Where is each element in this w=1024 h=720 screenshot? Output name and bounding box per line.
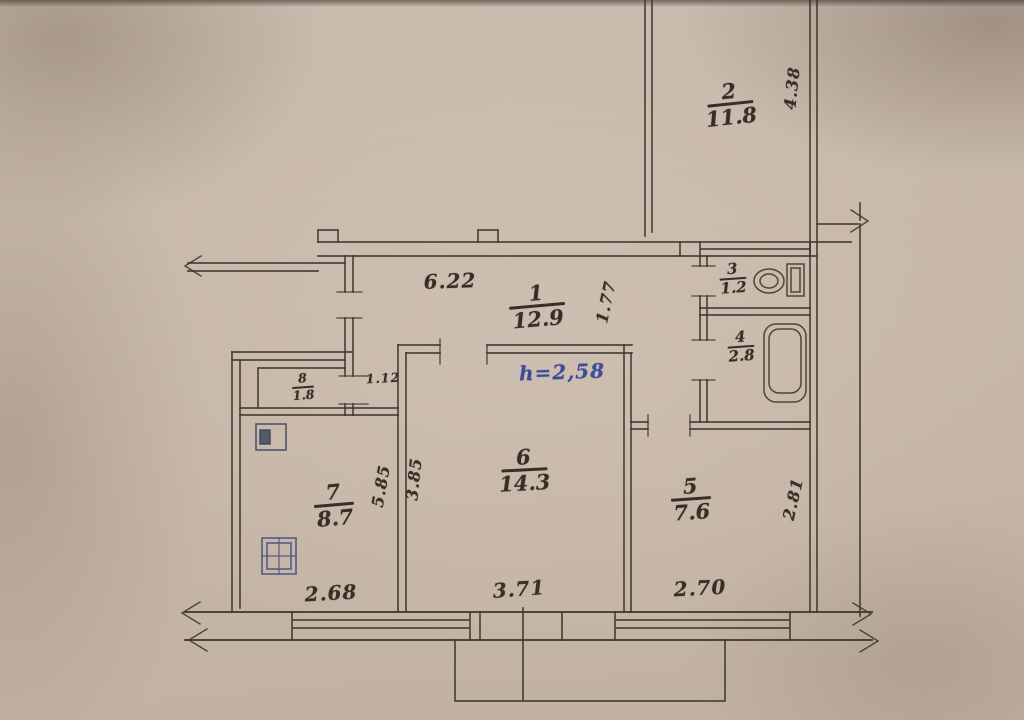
room-label-bedroom: 7 8.7 [312,480,356,531]
room-area: 11.8 [705,104,758,131]
dim-living-width: 3.71 [492,575,546,603]
floor-plan-photo: 2 11.8 4.38 6.22 1 12.9 1.77 3 1.2 4 2.8… [0,0,1024,720]
room-area: 1.8 [292,388,315,402]
bottom-wall [182,602,878,701]
room-area: 8.7 [316,506,354,531]
room-number: 6 [515,446,531,468]
room-area: 2.8 [728,348,755,365]
top-left-wing [185,256,345,276]
toilet-icon [754,264,804,296]
room-area: 7.6 [673,500,711,524]
vent-icon [256,424,286,450]
room-number: 1 [528,282,544,305]
window-icon [292,612,470,640]
corridor-west-wall [337,256,368,415]
bathtub-icon [764,324,806,402]
room-label-kitchen: 5 7.6 [669,474,712,524]
window-icon [615,612,790,640]
balcony-door [480,608,562,700]
room-number: 2 [720,80,737,103]
room-area: 14.3 [499,471,551,495]
room-label-corridor: 1 12.9 [507,280,567,332]
top-wall [318,230,851,256]
room-number: 4 [735,329,746,345]
stove-icon [262,538,296,574]
balcony-outline [455,640,725,701]
room-area: 1.2 [720,280,747,297]
ceiling-height-note: h=2,58 [519,359,606,386]
dim-bedroom-width: 2.68 [304,580,358,607]
room-label-closet: 8 1.8 [291,372,315,403]
room-area: 12.9 [512,306,565,332]
room-number: 5 [682,475,698,497]
room-label-upper-room: 2 11.8 [702,78,758,130]
room-label-living: 6 14.3 [497,445,551,495]
window-icon [680,242,810,256]
floor-plan-drawing [0,0,1024,720]
room-label-bath: 4 2.8 [726,329,755,365]
room-number: 8 [298,372,308,385]
room-number: 3 [727,261,738,277]
room-number: 7 [325,481,341,504]
dim-corridor-width: 6.22 [423,268,477,294]
room-label-toilet: 3 1.2 [718,261,747,297]
dim-kitchen-width: 2.70 [673,575,727,602]
dim-closet-door: 1.12 [365,370,400,387]
